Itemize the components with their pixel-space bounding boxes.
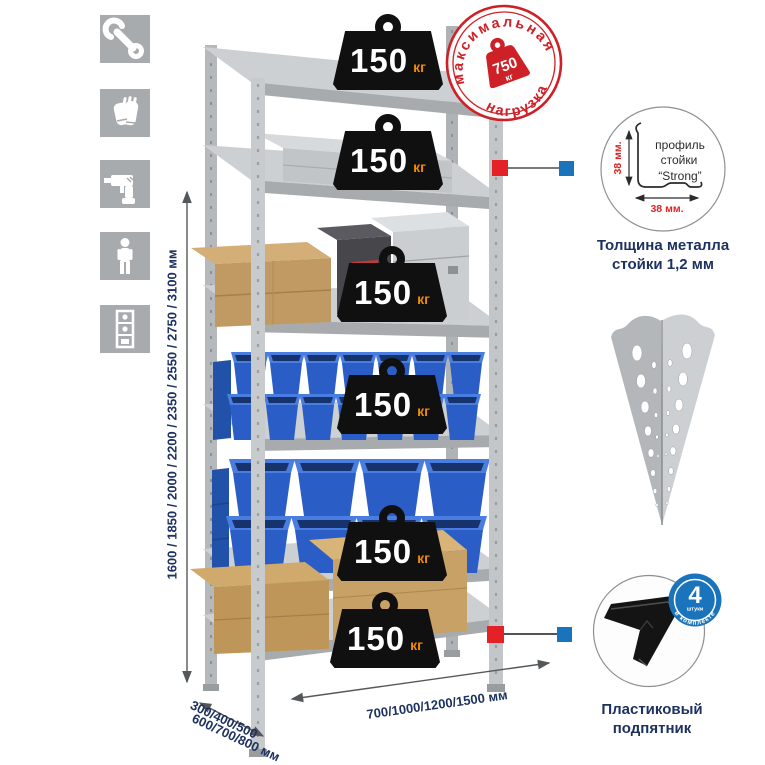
badge-value: 150 [350, 142, 408, 180]
blue-marker-bottom [557, 627, 572, 642]
rack-icon [100, 305, 150, 353]
badge-value: 150 [354, 533, 412, 571]
profile-dim-height: 38 мм. [612, 141, 624, 174]
wrench-icon [100, 15, 150, 63]
profile-dim-width: 38 мм. [650, 203, 683, 215]
weight-badge-shelf6: 150кг [330, 592, 440, 668]
badge-unit: кг [417, 550, 430, 566]
badge-value: 150 [347, 620, 405, 658]
foot-caption: Пластиковый подпятник [582, 700, 722, 738]
badge-unit: кг [413, 59, 426, 75]
foot-callout-connector [487, 626, 572, 643]
profile-label-2: стойки [661, 153, 698, 167]
kit-count-badge: 4 штуки в комплекте [667, 572, 723, 628]
weight-badge-shelf5: 150кг [337, 505, 447, 581]
badge-unit: кг [417, 403, 430, 419]
badge-unit: кг [417, 291, 430, 307]
angle-post-image [597, 295, 729, 533]
badge-unit: кг [410, 637, 423, 653]
profile-callout-connector [492, 160, 574, 176]
foot-caption-line1: Пластиковый [582, 700, 722, 719]
weight-badge-shelf4: 150кг [337, 358, 447, 434]
kit-badge-small-text: штуки [687, 607, 704, 613]
badge-value: 150 [354, 386, 412, 424]
product-infographic: 150кг 150кг 150кг 150кг 150кг 150кг макс… [0, 0, 765, 765]
red-marker-top [492, 160, 508, 176]
badge-unit: кг [413, 159, 426, 175]
profile-caption-line1: Толщина металла [580, 236, 746, 255]
weight-badge-shelf1: 150кг [333, 14, 443, 90]
profile-caption: Толщина металла стойки 1,2 мм [580, 236, 746, 274]
weight-badge-shelf3: 150кг [337, 246, 447, 322]
blue-marker-top [559, 161, 574, 176]
foot-caption-line2: подпятник [582, 719, 722, 738]
red-marker-bottom [487, 626, 504, 643]
badge-value: 150 [350, 42, 408, 80]
badge-value: 150 [354, 274, 412, 312]
profile-label-3: “Strong” [658, 169, 701, 183]
drill-icon [100, 160, 150, 208]
post-profile-callout: 38 мм. 38 мм. профиль стойки “Strong” [583, 103, 743, 237]
kit-badge-number: 4 [688, 582, 702, 609]
weight-badge-shelf2: 150кг [333, 114, 443, 190]
profile-label-1: профиль [655, 138, 705, 152]
gloves-icon [100, 89, 150, 137]
max-load-stamp: максимальная нагрузка 750 кг [440, 0, 568, 128]
person-icon [100, 232, 150, 280]
profile-caption-line2: стойки 1,2 мм [580, 255, 746, 274]
height-dimension-label: 1600 / 1850 / 2000 / 2200 / 2350 / 2550 … [165, 205, 180, 625]
